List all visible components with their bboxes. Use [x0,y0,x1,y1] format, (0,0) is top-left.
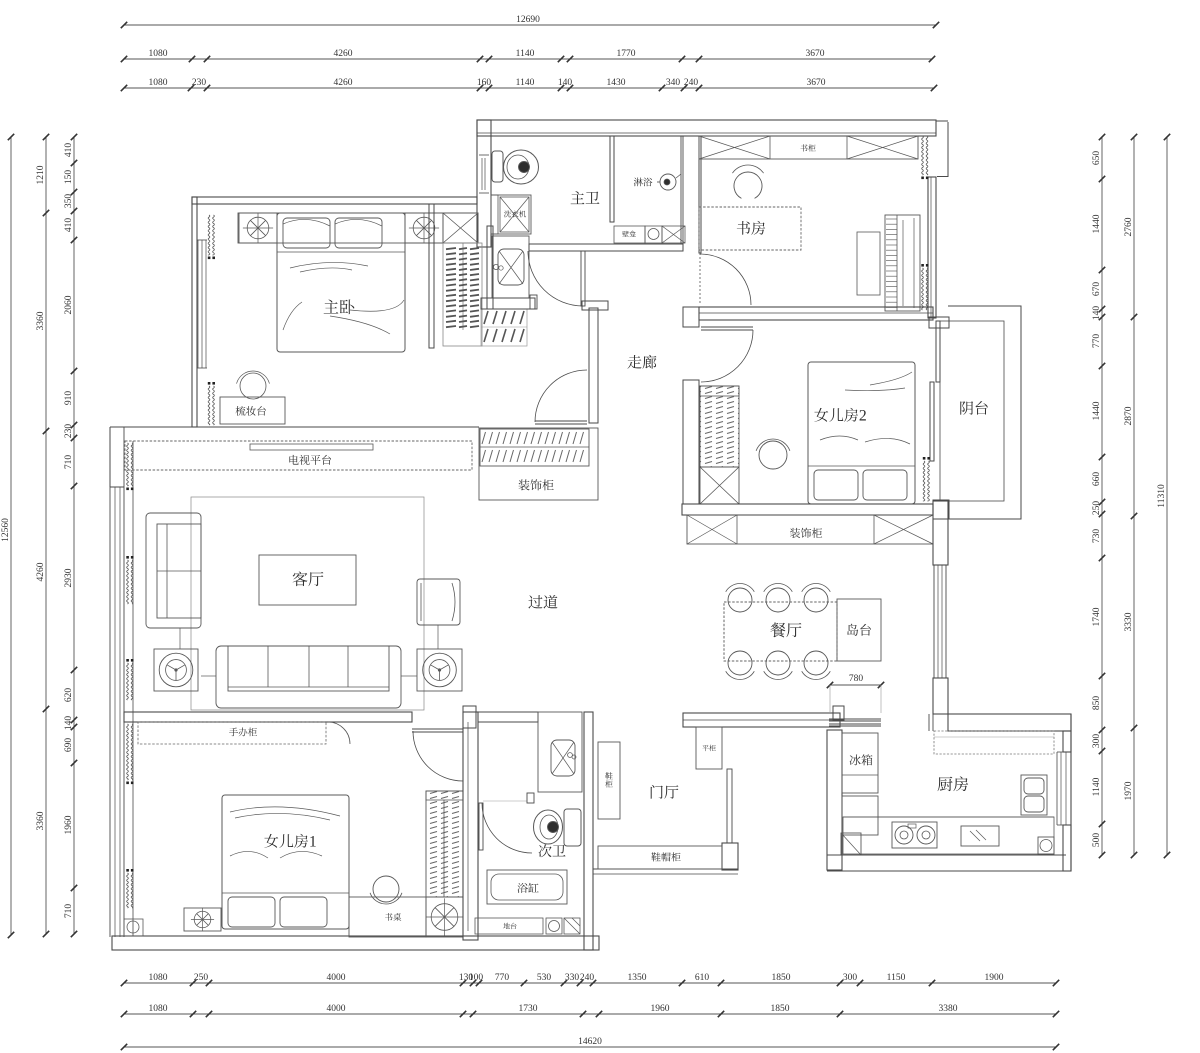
svg-text:1440: 1440 [1092,214,1102,233]
svg-text:1080: 1080 [149,49,168,59]
svg-text:1430: 1430 [607,78,626,88]
svg-text:240: 240 [684,78,699,88]
svg-text:780: 780 [849,674,864,684]
svg-text:230: 230 [64,424,74,439]
svg-text:240: 240 [580,973,595,983]
svg-text:530: 530 [537,973,552,983]
svg-text:230: 230 [192,78,207,88]
svg-text:2: 2 [859,408,867,425]
svg-text:1140: 1140 [1092,777,1102,796]
svg-text:4000: 4000 [327,973,346,983]
svg-text:1080: 1080 [149,1004,168,1014]
svg-text:3360: 3360 [36,811,46,830]
svg-text:1970: 1970 [1124,781,1134,800]
svg-text:300: 300 [843,973,858,983]
svg-text:410: 410 [64,143,74,158]
svg-text:1140: 1140 [516,49,535,59]
svg-text:2060: 2060 [64,295,74,314]
svg-text:300: 300 [1092,734,1102,749]
svg-text:3670: 3670 [807,78,826,88]
svg-text:2870: 2870 [1124,406,1134,425]
svg-text:140: 140 [558,78,573,88]
svg-text:770: 770 [495,973,510,983]
svg-text:1960: 1960 [651,1004,670,1014]
svg-text:12560: 12560 [1,518,11,542]
svg-text:3380: 3380 [939,1004,958,1014]
svg-text:250: 250 [1092,501,1102,516]
svg-text:670: 670 [1092,282,1102,297]
svg-text:4000: 4000 [327,1004,346,1014]
svg-text:150: 150 [64,170,74,185]
svg-text:1900: 1900 [985,973,1004,983]
svg-text:1080: 1080 [149,973,168,983]
svg-text:1440: 1440 [1092,401,1102,420]
svg-text:330: 330 [565,973,580,983]
svg-text:250: 250 [194,973,209,983]
svg-text:1850: 1850 [772,973,791,983]
svg-text:1210: 1210 [36,165,46,184]
svg-text:710: 710 [64,904,74,919]
svg-text:1350: 1350 [628,973,647,983]
svg-text:620: 620 [64,688,74,703]
svg-text:12690: 12690 [516,15,540,25]
svg-text:4260: 4260 [36,562,46,581]
svg-text:1770: 1770 [617,49,636,59]
svg-text:690: 690 [64,738,74,753]
svg-text:660: 660 [1092,472,1102,487]
svg-text:1: 1 [309,834,317,851]
svg-text:140: 140 [1092,306,1102,321]
svg-text:1150: 1150 [887,973,906,983]
svg-text:14620: 14620 [578,1037,602,1047]
svg-text:650: 650 [1092,151,1102,166]
svg-text:500: 500 [1092,833,1102,848]
svg-text:340: 340 [666,78,681,88]
svg-text:1740: 1740 [1092,607,1102,626]
svg-text:770: 770 [1092,334,1102,349]
svg-text:4260: 4260 [334,49,353,59]
svg-text:1850: 1850 [771,1004,790,1014]
svg-text:2930: 2930 [64,568,74,587]
svg-text:3330: 3330 [1124,612,1134,631]
svg-text:850: 850 [1092,696,1102,711]
svg-text:100: 100 [469,973,484,983]
svg-text:350: 350 [64,194,74,209]
svg-text:3670: 3670 [806,49,825,59]
svg-text:730: 730 [1092,529,1102,544]
svg-text:11310: 11310 [1157,484,1167,508]
svg-text:3360: 3360 [36,311,46,330]
svg-text:1080: 1080 [149,78,168,88]
svg-text:610: 610 [695,973,710,983]
svg-text:2760: 2760 [1124,217,1134,236]
svg-text:410: 410 [64,218,74,233]
svg-text:140: 140 [64,716,74,731]
svg-text:910: 910 [64,391,74,406]
svg-text:1960: 1960 [64,815,74,834]
svg-text:4260: 4260 [334,78,353,88]
svg-text:1730: 1730 [519,1004,538,1014]
svg-text:1140: 1140 [516,78,535,88]
svg-text:160: 160 [477,78,492,88]
svg-text:710: 710 [64,455,74,470]
